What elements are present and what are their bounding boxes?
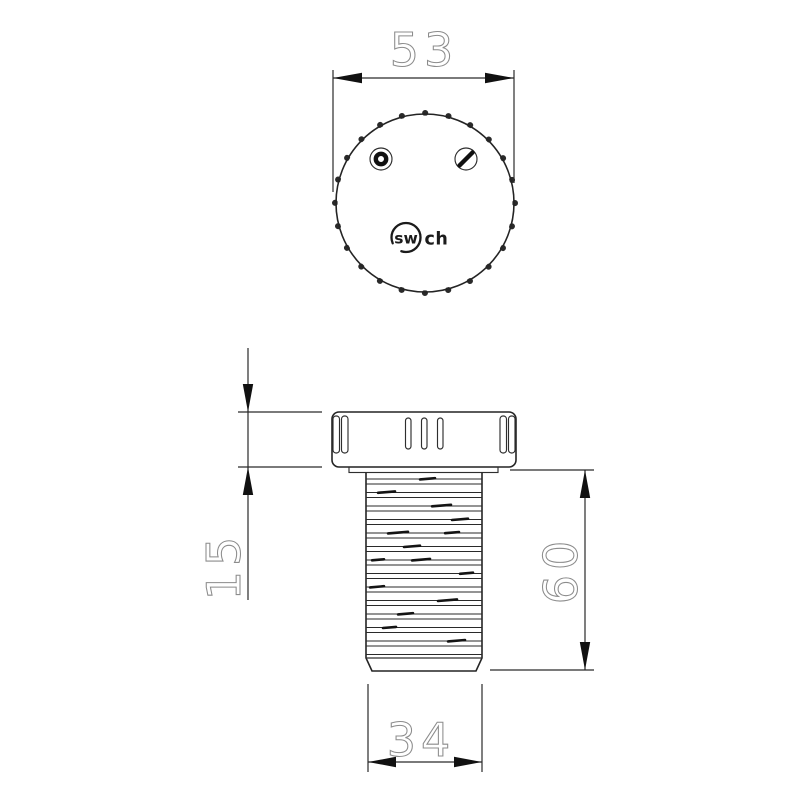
threaded-body xyxy=(366,473,482,672)
cap-slot xyxy=(500,416,507,453)
dimension-thread-diameter: 34 xyxy=(368,684,482,772)
cap-slot xyxy=(438,418,444,449)
cap-slot xyxy=(422,418,428,449)
arrow-down xyxy=(580,642,590,670)
dimension-value-60: 60 xyxy=(534,536,588,605)
logo-text-ch: ch xyxy=(425,230,449,250)
arrow-up xyxy=(580,470,590,498)
technical-drawing: 53 sw ch xyxy=(0,0,800,800)
drawing-canvas: 53 sw ch xyxy=(0,0,800,800)
cap xyxy=(332,412,516,467)
dimension-body-length: 60 xyxy=(490,470,594,670)
cap-slot xyxy=(406,418,412,449)
arrow-up xyxy=(243,467,253,495)
top-view: 53 sw ch xyxy=(333,23,515,293)
arrow-right xyxy=(485,73,514,83)
arrow-left xyxy=(333,73,362,83)
arrow-down xyxy=(243,384,253,412)
flange xyxy=(349,467,498,473)
dimension-value-53: 53 xyxy=(390,23,459,77)
side-view: 15 60 34 xyxy=(197,348,594,772)
cap-slot xyxy=(509,416,516,453)
dial-outline xyxy=(335,113,515,293)
logo-text-sw: sw xyxy=(394,230,418,248)
dimension-cap-height: 15 xyxy=(197,348,322,600)
cap-slot xyxy=(342,416,349,453)
dimension-value-15: 15 xyxy=(197,532,251,601)
dimension-value-34: 34 xyxy=(387,713,456,767)
knurl-mask xyxy=(338,116,513,291)
arrow-right xyxy=(454,757,482,767)
cap-body xyxy=(332,412,516,467)
cap-slot xyxy=(333,416,340,453)
